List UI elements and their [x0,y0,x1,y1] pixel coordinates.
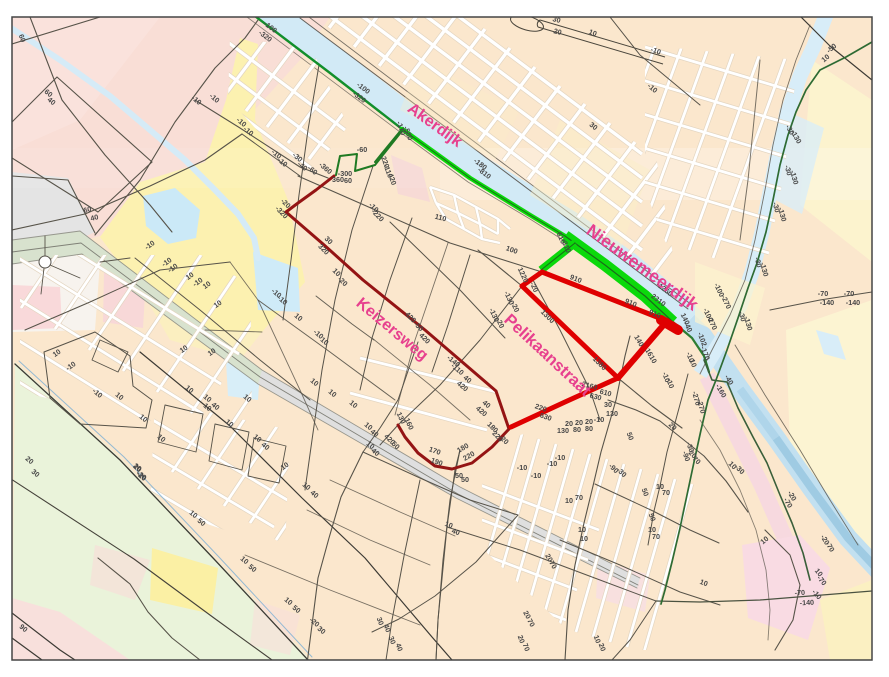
svg-text:10: 10 [565,496,573,505]
svg-text:130: 130 [557,426,569,435]
svg-text:-140: -140 [799,598,814,608]
svg-text:-140: -140 [846,298,860,307]
svg-text:80: 80 [573,425,581,434]
svg-text:-60: -60 [357,145,367,154]
svg-text:-70: -70 [794,588,805,598]
svg-text:30: 30 [604,400,612,409]
svg-text:70: 70 [575,493,583,502]
svg-text:70: 70 [662,488,670,497]
svg-text:50: 50 [461,475,469,484]
svg-text:70: 70 [652,532,660,541]
svg-text:-10: -10 [531,471,541,480]
svg-text:60: 60 [344,176,352,185]
svg-text:-10: -10 [517,463,527,472]
svg-text:-140: -140 [820,298,834,307]
svg-text:10: 10 [578,525,586,534]
svg-text:360: 360 [332,175,344,184]
svg-text:10: 10 [580,534,588,543]
svg-text:-10: -10 [555,453,565,462]
svg-text:80: 80 [585,424,593,433]
svg-text:130: 130 [606,409,618,418]
svg-text:-10: -10 [594,415,604,424]
svg-text:-70: -70 [844,289,854,298]
svg-text:-70: -70 [818,289,828,298]
